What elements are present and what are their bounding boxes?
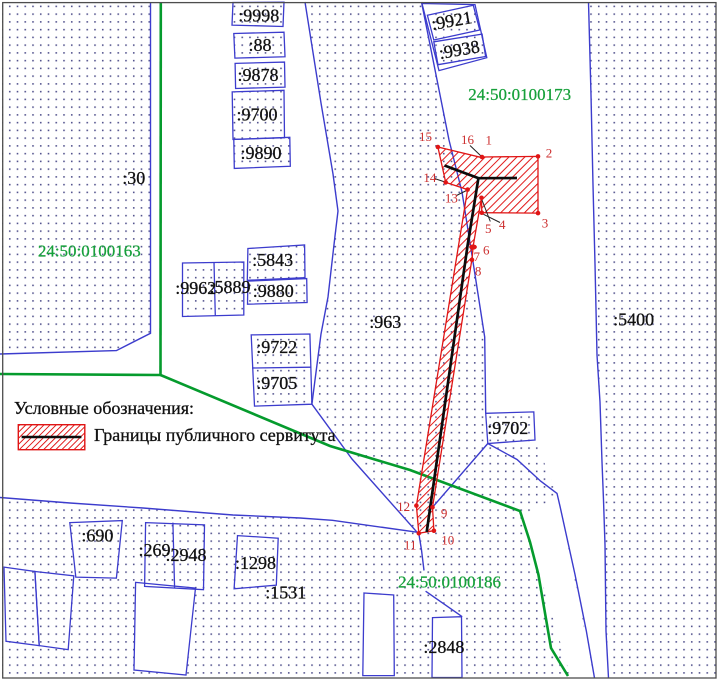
svg-text:16: 16 <box>461 132 475 147</box>
svg-text::5889: :5889 <box>209 277 250 297</box>
svg-text:24:50:0100163: 24:50:0100163 <box>38 242 141 261</box>
svg-text:11: 11 <box>404 537 417 552</box>
svg-text::30: :30 <box>122 168 145 188</box>
svg-text::9878: :9878 <box>237 65 278 85</box>
svg-text:10: 10 <box>441 533 454 548</box>
svg-text:9: 9 <box>441 505 448 520</box>
svg-text::1298: :1298 <box>235 553 276 573</box>
svg-text::88: :88 <box>248 35 271 55</box>
svg-text::2948: :2948 <box>165 545 206 565</box>
svg-text::9880: :9880 <box>253 281 294 301</box>
svg-text:8: 8 <box>475 263 482 278</box>
svg-text:14: 14 <box>423 170 437 185</box>
svg-text:24:50:0100186: 24:50:0100186 <box>398 573 501 592</box>
svg-text:1: 1 <box>485 133 492 148</box>
svg-text:Границы публичного сервитута: Границы публичного сервитута <box>94 425 336 445</box>
svg-text::690: :690 <box>81 526 113 546</box>
svg-text:7: 7 <box>474 249 481 264</box>
svg-text:Условные обозначения:: Условные обозначения: <box>14 398 194 418</box>
svg-text::9705: :9705 <box>256 373 297 393</box>
svg-text:13: 13 <box>445 191 458 206</box>
svg-text::5843: :5843 <box>252 250 293 270</box>
svg-text::9890: :9890 <box>240 143 281 163</box>
svg-text:24:50:0100173: 24:50:0100173 <box>468 85 571 104</box>
svg-text::9700: :9700 <box>236 105 277 125</box>
svg-text:5: 5 <box>485 221 492 236</box>
svg-text:12: 12 <box>397 499 410 514</box>
svg-text:6: 6 <box>483 243 490 258</box>
svg-text::1531: :1531 <box>265 583 306 603</box>
svg-text::963: :963 <box>369 312 401 332</box>
svg-text::2848: :2848 <box>423 637 464 657</box>
svg-text::9722: :9722 <box>256 337 297 357</box>
svg-text::9702: :9702 <box>487 418 528 438</box>
svg-text:15: 15 <box>419 129 432 144</box>
svg-text:2: 2 <box>546 146 553 161</box>
svg-text::9998: :9998 <box>238 6 279 26</box>
svg-text:4: 4 <box>499 217 506 232</box>
svg-text::5400: :5400 <box>613 309 654 329</box>
svg-text:3: 3 <box>542 216 549 231</box>
